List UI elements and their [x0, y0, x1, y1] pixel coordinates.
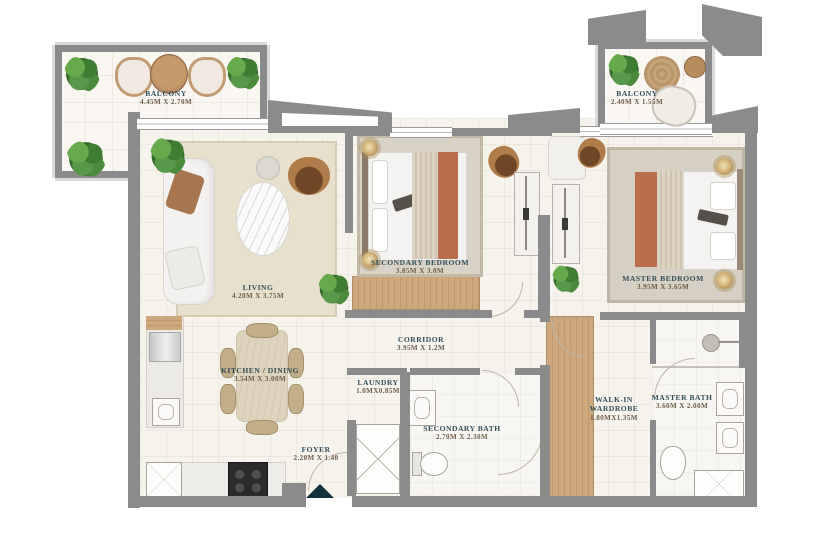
coffee-table [236, 182, 290, 256]
toilet [420, 452, 448, 476]
plant-icon [66, 140, 106, 178]
room-dims: 2.20M X 1.40 [294, 454, 339, 463]
pillow [372, 160, 388, 204]
wall [650, 420, 656, 496]
shower-divider-line [652, 366, 745, 368]
toilet [660, 446, 686, 480]
wall [540, 312, 550, 322]
ceiling-light-icon [716, 272, 733, 289]
knit-throw [657, 170, 683, 269]
plant-icon [318, 272, 350, 306]
knit-throw [412, 152, 438, 259]
room-label-master-bedroom: MASTER BEDROOM 3.95M X 3.65M [622, 274, 703, 292]
room-label-balcony-right: BALCONY 2.40M X 1.55M [611, 89, 663, 107]
dishwasher [146, 462, 182, 497]
room-label-walkin-wardrobe: WALK-IN WARDROBE 1.80MX1.35M [584, 395, 644, 423]
kitchen-sink [152, 398, 180, 426]
plant-icon [552, 264, 580, 294]
room-name: WALK-IN WARDROBE [584, 395, 644, 414]
room-label-master-bath: MASTER BATH 3.60M X 2.00M [652, 393, 713, 411]
room-dims: 3.95M X 3.65M [622, 283, 703, 292]
room-name: SECONDARY BEDROOM [371, 258, 469, 267]
side-table [256, 156, 280, 180]
room-dims: 4.20M X 3.75M [232, 292, 284, 301]
floor-plan: BALCONY 4.45M X 2.70M BALCONY 2.40M X 1.… [0, 0, 818, 535]
room-label-laundry: LAUNDRY 1.0MX0.85M [356, 378, 400, 396]
plant-icon [64, 55, 100, 93]
armchair [288, 157, 330, 195]
structural-wall-mass [508, 108, 580, 133]
dining-chair [246, 420, 278, 435]
room-dims: 3.95M X 1.2M [397, 344, 445, 353]
wall [55, 45, 62, 178]
terracotta-throw [438, 152, 458, 259]
room-name: KITCHEN / DINING [221, 366, 299, 375]
bed-headboard [737, 169, 743, 270]
plant-icon [226, 55, 260, 91]
wall [400, 372, 410, 496]
bath-sink [408, 390, 436, 426]
wall [260, 45, 267, 122]
room-label-balcony-left: BALCONY 4.45M X 2.70M [140, 89, 192, 107]
wardrobe-handle [562, 218, 568, 230]
shower-tray [694, 470, 744, 498]
cooktop [228, 462, 268, 497]
wall [55, 45, 267, 52]
room-dims: 1.0MX0.85M [356, 387, 400, 396]
room-dims: 1.80MX1.35M [584, 414, 644, 423]
wall [345, 310, 492, 318]
wall [128, 112, 140, 508]
balcony-table [150, 54, 188, 94]
wall [540, 365, 550, 496]
pillow [710, 182, 736, 210]
balcony-side-table [684, 56, 706, 78]
dining-chair [246, 323, 278, 338]
wall [515, 368, 543, 375]
room-dims: 3.54M X 3.00M [221, 375, 299, 384]
balcony-chair [188, 57, 226, 97]
structural-wall-mass [712, 106, 758, 133]
wall [410, 368, 480, 375]
room-label-corridor: CORRIDOR 3.95M X 1.2M [397, 335, 445, 353]
bath-sink [716, 382, 744, 416]
plant-icon [150, 136, 186, 176]
wardrobe-handle [523, 208, 529, 220]
dining-chair [220, 384, 236, 414]
bath-sink [716, 422, 744, 454]
room-name: SECONDARY BATH [423, 424, 500, 433]
fridge [149, 332, 181, 362]
room-label-secondary-bath: SECONDARY BATH 2.70M X 2.30M [423, 424, 500, 442]
kitchen-cabinet [146, 316, 182, 330]
room-dims: 2.40M X 1.55M [611, 98, 663, 107]
plant-icon [608, 52, 640, 88]
room-name: BALCONY [611, 89, 663, 98]
balcony-right-door-window [600, 123, 712, 135]
wall [538, 215, 550, 315]
wall [598, 42, 605, 130]
room-name: BALCONY [140, 89, 192, 98]
shower-head-icon [702, 334, 720, 352]
room-name: LIVING [232, 283, 284, 292]
terracotta-throw [635, 172, 657, 267]
room-dims: 4.45M X 2.70M [140, 98, 192, 107]
wall [739, 318, 745, 368]
room-label-secondary-bedroom: SECONDARY BEDROOM 3.85M X 3.0M [371, 258, 469, 276]
pillow [372, 208, 388, 252]
room-name: FOYER [294, 445, 339, 454]
room-dims: 2.70M X 2.30M [423, 433, 500, 442]
wall [600, 312, 757, 320]
wall [352, 496, 757, 507]
wall [282, 483, 306, 496]
ceiling-light-icon [716, 158, 733, 175]
room-name: MASTER BATH [652, 393, 713, 402]
wall [128, 496, 306, 507]
room-label-living: LIVING 4.20M X 3.75M [232, 283, 284, 301]
room-label-foyer: FOYER 2.20M X 1.40 [294, 445, 339, 463]
ceiling-light-icon [362, 140, 378, 156]
room-label-kitchen-dining: KITCHEN / DINING 3.54M X 3.00M [221, 366, 299, 384]
secondary-bedroom-closet-floor [352, 276, 480, 310]
room-name: LAUNDRY [356, 378, 400, 387]
wall [650, 318, 656, 364]
wall [345, 128, 353, 233]
room-name: CORRIDOR [397, 335, 445, 344]
living-window [137, 118, 268, 130]
room-dims: 3.85M X 3.0M [371, 267, 469, 276]
wall [347, 368, 407, 375]
structural-wall-mass [588, 10, 646, 45]
wall [347, 420, 356, 496]
pillow [710, 232, 736, 260]
room-dims: 3.60M X 2.00M [652, 402, 713, 411]
secondary-bedroom-window [390, 127, 452, 138]
dining-chair [288, 384, 304, 414]
wall [705, 42, 712, 130]
room-name: MASTER BEDROOM [622, 274, 703, 283]
washing-machine-closet [356, 424, 400, 494]
